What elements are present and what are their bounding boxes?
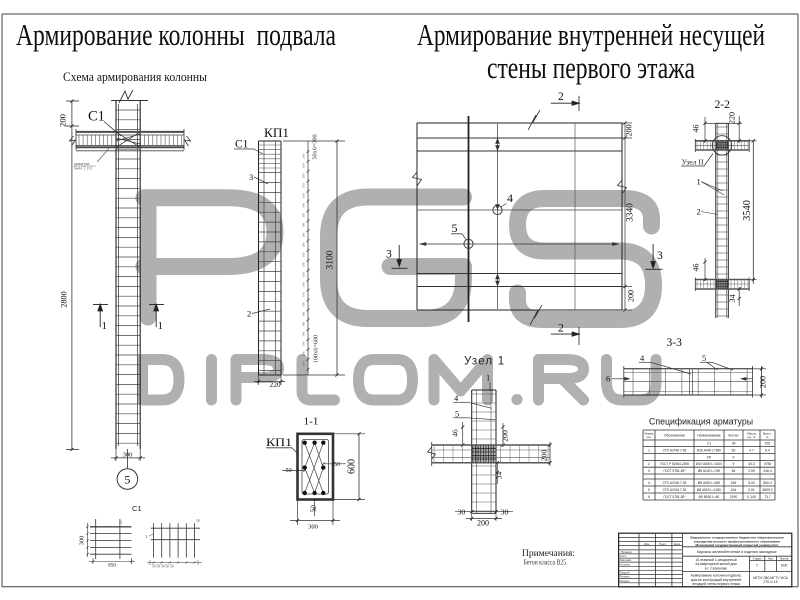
svg-text:ГОСТ 5781-82*: ГОСТ 5781-82*	[664, 469, 687, 473]
svg-text:СТО АСЧМ 7-93: СТО АСЧМ 7-93	[663, 488, 687, 492]
svg-text:2800: 2800	[60, 291, 69, 307]
svg-text:несущей стены первого этажа: несущей стены первого этажа	[692, 582, 740, 586]
svg-text:434: 434	[731, 488, 737, 492]
svg-text:39: 39	[732, 442, 736, 446]
svg-text:2-2: 2-2	[715, 99, 731, 111]
svg-text:50 50 50 50 50: 50 50 50 50 50	[152, 565, 174, 569]
svg-text:Листов: Листов	[780, 557, 789, 561]
svg-text:100: 100	[302, 331, 306, 336]
svg-text:2190: 2190	[730, 495, 738, 499]
svg-text:Дата: Дата	[674, 542, 681, 546]
svg-text:Наименование: Наименование	[697, 434, 721, 438]
svg-text:100: 100	[302, 193, 306, 198]
svg-text:50х6=300: 50х6=300	[312, 134, 319, 159]
svg-text:3: 3	[249, 172, 253, 182]
svg-text:Узел II: Узел II	[682, 159, 705, 167]
svg-text:50: 50	[311, 505, 318, 512]
svg-text:5: 5	[452, 221, 458, 235]
svg-text:1: 1	[648, 448, 650, 452]
svg-text:4.7: 4.7	[749, 448, 754, 452]
svg-text:100: 100	[302, 213, 306, 218]
svg-text:ГОСТ Р 52544-2006: ГОСТ Р 52544-2006	[660, 462, 689, 466]
svg-text:248.4: 248.4	[763, 469, 772, 473]
svg-text:6: 6	[648, 495, 650, 499]
svg-text:165: 165	[731, 481, 737, 485]
svg-text:100: 100	[302, 351, 306, 356]
svg-text:Ø8 А500 L=650: Ø8 А500 L=650	[698, 481, 721, 485]
svg-text:5: 5	[702, 353, 706, 363]
svg-text:100: 100	[302, 302, 306, 307]
svg-text:202: 202	[765, 442, 771, 446]
svg-text:ГОСТ 5781-82*: ГОСТ 5781-82*	[664, 495, 687, 499]
svg-text:5: 5	[124, 473, 130, 487]
svg-text:200: 200	[540, 450, 549, 462]
svg-text:5: 5	[455, 409, 459, 419]
svg-text:650.4: 650.4	[763, 481, 772, 485]
svg-text:100: 100	[302, 183, 306, 188]
svg-text:73.7: 73.7	[764, 495, 771, 499]
svg-text:Армирование колонны подвала: Армирование колонны подвала	[16, 17, 336, 52]
svg-text:46: 46	[692, 125, 701, 133]
svg-text:100: 100	[302, 153, 306, 158]
svg-text:200: 200	[58, 114, 68, 127]
svg-text:СТО АСЧМ 7-93: СТО АСЧМ 7-93	[663, 448, 687, 452]
svg-text:84: 84	[732, 469, 736, 473]
svg-text:46: 46	[692, 264, 701, 272]
svg-text:6: 6	[606, 374, 610, 384]
svg-text:100: 100	[302, 292, 306, 297]
svg-text:ед., кг: ед., кг	[747, 435, 755, 439]
svg-text:300: 300	[79, 536, 86, 546]
svg-text:100х6=600: 100х6=600	[313, 335, 320, 363]
svg-text:Московский государственный отк: Московский государственный открытый унив…	[696, 543, 779, 547]
svg-text:в г. Серпухове: в г. Серпухове	[705, 567, 728, 571]
svg-text:9: 9	[733, 455, 735, 459]
svg-text:3100: 3100	[325, 250, 336, 269]
svg-text:3-3: 3-3	[667, 337, 683, 349]
svg-text:100: 100	[302, 312, 306, 317]
svg-text:16: 16	[196, 519, 200, 523]
svg-text:1: 1	[486, 373, 490, 383]
svg-text:Ø10 А500 L=3100: Ø10 А500 L=3100	[696, 462, 722, 466]
svg-text:5.02: 5.02	[748, 481, 755, 485]
svg-text:Бетон класса В25.: Бетон класса В25.	[524, 559, 568, 567]
svg-text:300: 300	[308, 524, 318, 531]
svg-text:МГОУ 080 МГТУ ИСА: МГОУ 080 МГТУ ИСА	[753, 576, 788, 580]
svg-text:100: 100	[302, 282, 306, 287]
svg-text:2: 2	[558, 91, 564, 103]
svg-text:Лист: Лист	[768, 557, 774, 561]
svg-text:СТО АСЧМ 7-93: СТО АСЧМ 7-93	[663, 481, 687, 485]
svg-text:8.4: 8.4	[765, 448, 770, 452]
svg-text:1: 1	[158, 320, 164, 332]
svg-text:600: 600	[347, 459, 358, 474]
svg-text:Каркасы железобетонные и издел: Каркасы железобетонные и изделия закладн…	[697, 550, 777, 554]
svg-text:3540: 3540	[742, 200, 753, 221]
svg-text:Ø8 А500 L=1250: Ø8 А500 L=1250	[697, 488, 721, 492]
svg-text:Стадия: Стадия	[753, 557, 762, 561]
svg-text:100: 100	[302, 322, 306, 327]
svg-text:КП1: КП1	[266, 437, 292, 449]
svg-text:30: 30	[501, 508, 509, 517]
svg-text:200: 200	[625, 125, 634, 137]
svg-text:4: 4	[648, 481, 650, 485]
svg-text:100: 100	[302, 242, 306, 247]
svg-text:850: 850	[108, 563, 116, 569]
svg-text:КП: КП	[707, 455, 712, 459]
svg-text:КП1: КП1	[264, 126, 289, 140]
svg-text:С1: С1	[132, 504, 142, 513]
svg-text:Ø16 А400 L=650: Ø16 А400 L=650	[697, 448, 721, 452]
svg-text:Подп.: Подп.	[659, 542, 667, 546]
svg-text:Ø8 А240 L=780: Ø8 А240 L=780	[698, 469, 721, 473]
svg-text:3: 3	[648, 469, 650, 473]
svg-text:9: 9	[733, 462, 735, 466]
svg-text:50: 50	[334, 461, 340, 468]
svg-text:1: 1	[102, 320, 108, 332]
svg-text:4: 4	[507, 191, 513, 205]
svg-text:2.01: 2.01	[748, 488, 755, 492]
svg-text:5: 5	[648, 488, 650, 492]
svg-text:Примечания:: Примечания:	[522, 549, 575, 559]
svg-text:Армирование внутренней несущей: Армирование внутренней несущей	[417, 17, 765, 52]
svg-text:220: 220	[270, 380, 281, 389]
svg-text:100: 100	[302, 361, 306, 366]
svg-text:34.3: 34.3	[748, 462, 755, 466]
svg-text:30: 30	[458, 508, 466, 517]
svg-text:4750: 4750	[764, 462, 772, 466]
svg-text:100: 100	[302, 272, 306, 277]
svg-text:Ø5 В500 L=60: Ø5 В500 L=60	[699, 495, 720, 499]
svg-text:2: 2	[247, 309, 251, 319]
svg-text:34: 34	[495, 472, 504, 480]
svg-text:Спецификация арматуры: Спецификация арматуры	[649, 417, 753, 427]
svg-text:2: 2	[648, 462, 650, 466]
svg-text:2: 2	[558, 323, 564, 335]
svg-text:50: 50	[732, 448, 736, 452]
svg-text:220: 220	[728, 112, 737, 124]
svg-text:200: 200	[627, 290, 636, 302]
svg-text:1: 1	[145, 534, 147, 539]
svg-text:100: 100	[302, 341, 306, 346]
svg-text:3: 3	[657, 250, 663, 262]
svg-text:100: 100	[302, 262, 306, 267]
svg-text:C1: C1	[88, 109, 105, 125]
svg-text:С1: С1	[707, 442, 711, 446]
svg-text:3699.2: 3699.2	[762, 488, 772, 492]
svg-text:1-1: 1-1	[304, 416, 319, 428]
svg-text:1: 1	[120, 520, 122, 525]
svg-text:100: 100	[302, 223, 306, 228]
svg-text:200: 200	[501, 430, 510, 442]
svg-text:3: 3	[386, 249, 392, 261]
svg-text:100: 100	[302, 232, 306, 237]
svg-text:1КЖ: 1КЖ	[781, 564, 788, 568]
svg-text:44-квартирный жилой дом: 44-квартирный жилой дом	[695, 562, 737, 566]
svg-text:Схема армирования колонны: Схема армирования колонны	[63, 70, 208, 84]
svg-text:Узел 1: Узел 1	[464, 356, 505, 368]
svg-text:46: 46	[451, 429, 460, 437]
svg-text:Реценз.: Реценз.	[620, 579, 631, 583]
svg-text:2: 2	[697, 207, 701, 217]
svg-text:100: 100	[302, 173, 306, 178]
svg-text:Изм.: Изм.	[644, 542, 650, 546]
svg-text:поз.: поз.	[646, 435, 652, 439]
svg-text:0.140: 0.140	[747, 495, 756, 499]
svg-text:Кол-во: Кол-во	[729, 434, 739, 438]
svg-text:34: 34	[728, 295, 737, 303]
svg-text:стены первого этажа: стены первого этажа	[487, 50, 695, 85]
svg-text:2.59: 2.59	[748, 469, 755, 473]
svg-text:200: 200	[759, 376, 768, 388]
svg-text:200: 200	[477, 519, 489, 528]
svg-text:100: 100	[302, 163, 306, 168]
svg-text:100: 100	[302, 252, 306, 257]
svg-text:Н.контр.: Н.контр.	[620, 562, 632, 566]
svg-text:Обозначение: Обозначение	[664, 434, 685, 438]
svg-text:100: 100	[302, 203, 306, 208]
svg-text:кг: кг	[766, 435, 768, 439]
svg-text:3340: 3340	[626, 203, 636, 222]
svg-text:270-V-15: 270-V-15	[763, 580, 777, 584]
svg-text:Провер.: Провер.	[621, 550, 632, 554]
svg-text:1: 1	[697, 177, 701, 187]
